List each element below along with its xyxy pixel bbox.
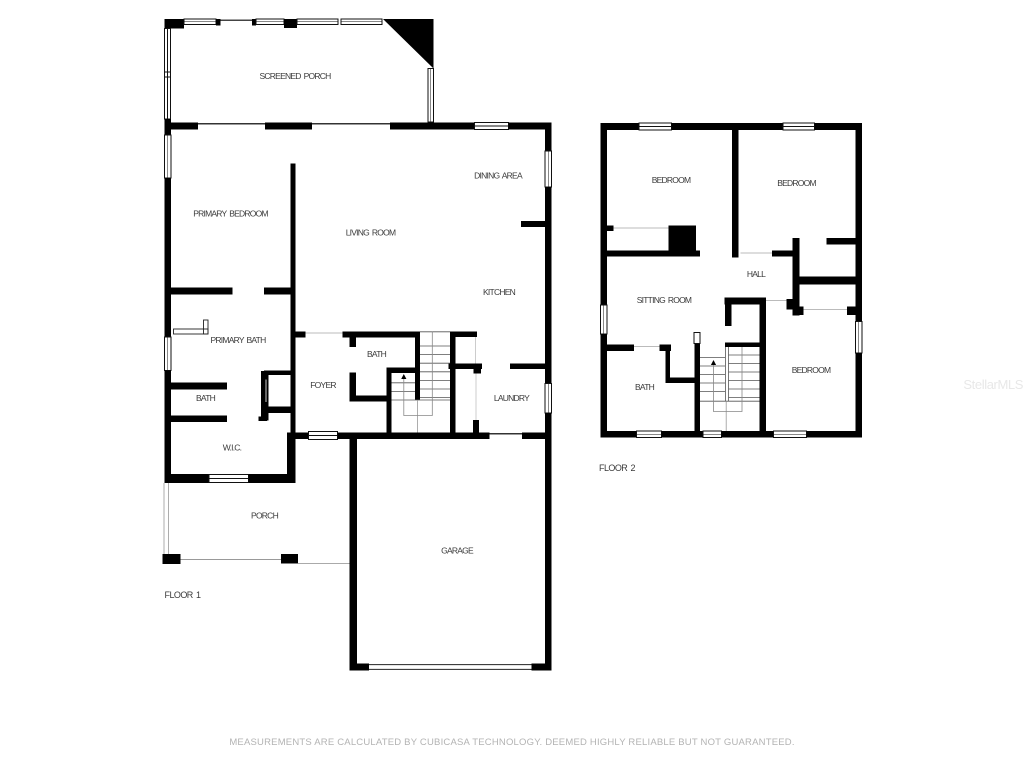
svg-text:MEASUREMENTS ARE CALCULATED BY: MEASUREMENTS ARE CALCULATED BY CUBICASA …: [229, 737, 794, 748]
svg-text:DINING AREA: DINING AREA: [474, 171, 523, 181]
svg-text:BEDROOM: BEDROOM: [652, 175, 691, 185]
svg-text:BEDROOM: BEDROOM: [777, 178, 816, 188]
svg-text:PORCH: PORCH: [251, 511, 279, 521]
svg-text:BATH: BATH: [367, 349, 387, 359]
svg-text:HALL: HALL: [747, 269, 766, 279]
svg-text:LIVING ROOM: LIVING ROOM: [346, 228, 396, 238]
svg-text:PRIMARY BATH: PRIMARY BATH: [210, 335, 266, 345]
svg-text:StellarMLS: StellarMLS: [963, 377, 1023, 392]
svg-text:LAUNDRY: LAUNDRY: [494, 393, 530, 403]
svg-text:BATH: BATH: [196, 393, 216, 403]
svg-text:KITCHEN: KITCHEN: [483, 287, 516, 297]
svg-text:SITTING ROOM: SITTING ROOM: [637, 295, 692, 305]
svg-text:FLOOR 2: FLOOR 2: [599, 463, 636, 473]
svg-text:PRIMARY BEDROOM: PRIMARY BEDROOM: [193, 209, 268, 219]
svg-text:FLOOR 1: FLOOR 1: [165, 590, 202, 600]
svg-text:BEDROOM: BEDROOM: [792, 365, 831, 375]
svg-text:W.I.C.: W.I.C.: [223, 443, 242, 453]
svg-text:FOYER: FOYER: [310, 380, 336, 390]
svg-text:SCREENED PORCH: SCREENED PORCH: [260, 71, 332, 81]
svg-text:GARAGE: GARAGE: [441, 546, 474, 556]
svg-text:BATH: BATH: [635, 382, 655, 392]
